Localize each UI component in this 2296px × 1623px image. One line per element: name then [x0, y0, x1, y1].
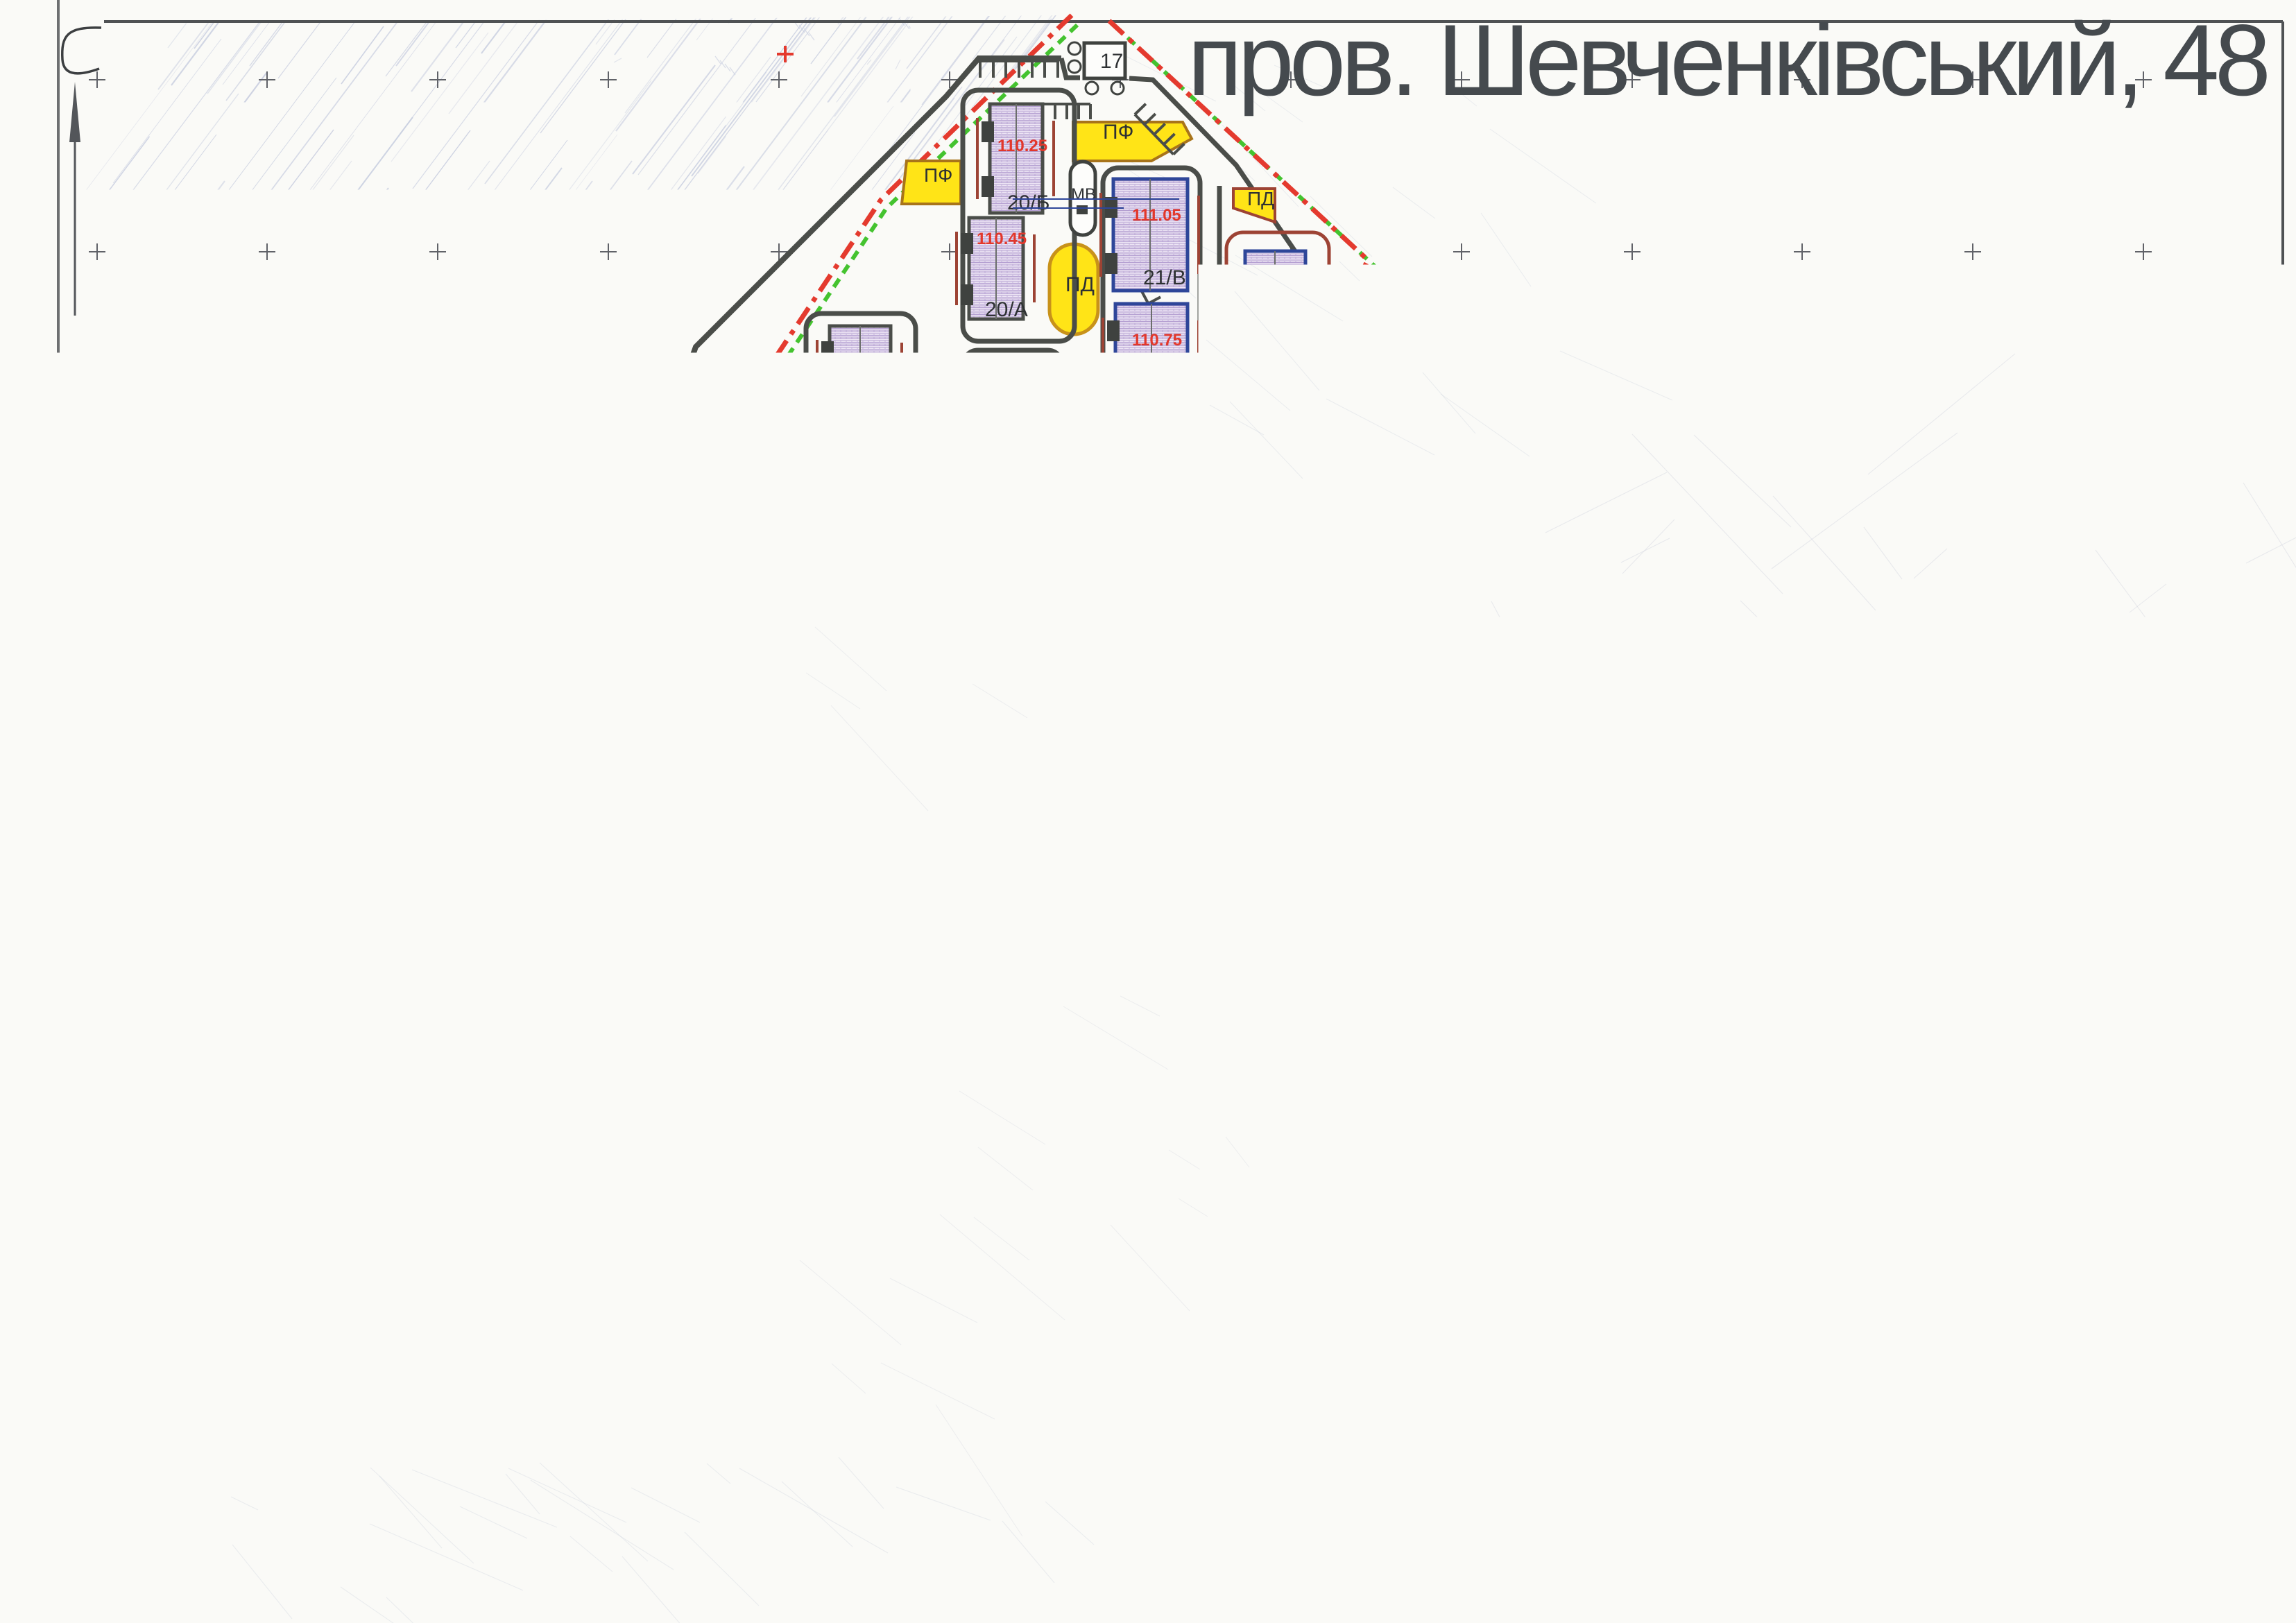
svg-text:110.10: 110.10: [836, 479, 886, 498]
svg-text:18: 18: [599, 1530, 619, 1551]
svg-text:АСП: АСП: [314, 1558, 351, 1579]
svg-text:19/Б: 19/Б: [1002, 438, 1045, 461]
svg-text:110.3: 110.3: [1690, 1368, 1727, 1385]
svg-text:7/А: 7/А: [803, 1445, 834, 1468]
svg-text:ПФ: ПФ: [527, 504, 558, 526]
svg-text:111.00: 111.00: [1156, 1166, 1205, 1185]
svg-text:110.45: 110.45: [977, 230, 1027, 248]
svg-text:ПД: ПД: [1065, 273, 1095, 296]
svg-text:15: 15: [1631, 1386, 1652, 1407]
svg-text:110.45: 110.45: [825, 1185, 875, 1204]
svg-text:110.10: 110.10: [819, 776, 868, 795]
svg-text:4”А”: 4”А”: [368, 1304, 407, 1327]
svg-text:ПФ: ПФ: [637, 993, 662, 1011]
svg-text:ПФ: ПФ: [570, 1289, 597, 1309]
svg-text:6”А”: 6”А”: [633, 1289, 673, 1312]
svg-text:ПФ: ПФ: [1067, 1208, 1093, 1229]
svg-text:110.10: 110.10: [361, 1205, 411, 1223]
svg-text:ПФ: ПФ: [1072, 407, 1101, 429]
svg-text:ПО: ПО: [1400, 1309, 1427, 1330]
svg-text:ПД: ПД: [799, 1070, 825, 1090]
svg-text:ПД: ПД: [935, 732, 962, 753]
svg-text:ПФ: ПФ: [1103, 121, 1133, 144]
svg-text:АСГ: АСГ: [1201, 1463, 1233, 1482]
svg-text:22: 22: [1274, 334, 1296, 357]
svg-text:ПД: ПД: [1332, 1205, 1353, 1223]
svg-text:ПФ: ПФ: [1595, 1391, 1620, 1409]
svg-text:110.25: 110.25: [997, 137, 1047, 155]
svg-text:13: 13: [748, 433, 768, 454]
svg-text:14/А: 14/А: [852, 541, 895, 564]
svg-text:9/А: 9/А: [1133, 1426, 1165, 1449]
svg-text:110.00: 110.00: [531, 884, 581, 903]
svg-text:20/Б: 20/Б: [1007, 191, 1050, 214]
svg-text:110.45: 110.45: [497, 1196, 547, 1215]
svg-text:20/А: 20/А: [985, 298, 1028, 321]
svg-text:110.10: 110.10: [963, 639, 1013, 658]
svg-text:АСГ: АСГ: [219, 1468, 254, 1488]
svg-text:110.45: 110.45: [470, 1380, 520, 1399]
svg-text:АСГ: АСГ: [774, 1562, 809, 1583]
svg-text:6”Б”: 6”Б”: [604, 1450, 643, 1472]
svg-text:5”А”: 5”А”: [474, 1457, 514, 1479]
svg-text:ПФ: ПФ: [559, 1131, 584, 1150]
svg-text:АСП: АСП: [992, 1140, 1027, 1158]
svg-text:17: 17: [1100, 50, 1123, 73]
svg-text:14/Б: 14/Б: [839, 666, 882, 689]
svg-text:АСП: АСП: [1082, 1484, 1117, 1502]
svg-text:ПД: ПД: [1247, 188, 1274, 209]
svg-text:1/А: 1/А: [697, 639, 728, 662]
svg-text:МВ: МВ: [1063, 471, 1088, 490]
svg-text:109.90: 109.90: [555, 1031, 606, 1050]
svg-text:108.75: 108.75: [723, 1486, 791, 1511]
svg-text:2/Б: 2/Б: [706, 1061, 737, 1084]
svg-text:ПО: ПО: [660, 895, 685, 914]
svg-text:3/А: 3/А: [542, 947, 574, 970]
svg-text:ПО: ПО: [712, 1450, 737, 1469]
svg-text:АСП: АСП: [1490, 1407, 1527, 1427]
svg-text:2/А: 2/А: [681, 925, 712, 948]
svg-text:110.40: 110.40: [971, 1166, 1021, 1185]
svg-text:АСГ: АСГ: [472, 1504, 506, 1525]
svg-text:пров. Шевченківський, 48: пров. Шевченківський, 48: [1188, 3, 2274, 117]
svg-text:110.40: 110.40: [799, 1369, 849, 1388]
svg-text:ПФ: ПФ: [173, 1218, 204, 1241]
svg-text:АСП: АСП: [613, 630, 651, 651]
svg-text:ПФ: ПФ: [855, 1085, 880, 1104]
svg-text:4”Б”: 4”Б”: [339, 1465, 377, 1488]
svg-text:111.45: 111.45: [1129, 1350, 1179, 1368]
svg-text:21/Б: 21/Б: [1143, 386, 1185, 409]
svg-text:110.10: 110.10: [688, 1041, 738, 1060]
svg-text:АСП: АСП: [276, 1354, 314, 1375]
svg-text:ПД: ПД: [893, 1276, 919, 1297]
svg-text:110.55: 110.55: [992, 496, 1042, 515]
svg-text:8/А: 8/А: [978, 1265, 1009, 1288]
svg-text:9/Б: 9/Б: [1163, 1265, 1194, 1288]
svg-text:АСП: АСП: [595, 764, 633, 785]
svg-text:АСГ: АСГ: [430, 775, 465, 796]
svg-text:110.85: 110.85: [1257, 282, 1307, 301]
svg-text:16: 16: [875, 391, 898, 414]
svg-text:ПФ: ПФ: [776, 857, 806, 880]
svg-text:110.65: 110.65: [991, 407, 1040, 426]
svg-text:АСП: АСП: [598, 694, 635, 714]
svg-text:АСП: АСП: [1301, 1144, 1336, 1162]
svg-text:1/Б: 1/Б: [687, 739, 718, 762]
svg-text:111.45: 111.45: [1491, 1288, 1541, 1307]
svg-text:110.75: 110.75: [1132, 331, 1182, 350]
svg-text:111.05: 111.05: [1132, 206, 1181, 225]
svg-text:5”Б”: 5”Б”: [504, 1296, 542, 1319]
svg-text:10: 10: [1323, 1330, 1346, 1353]
svg-text:МВ: МВ: [1071, 185, 1096, 204]
svg-text:АСГ: АСГ: [957, 1483, 992, 1504]
svg-text:21/В: 21/В: [1143, 266, 1186, 289]
svg-text:110.10: 110.10: [334, 1389, 384, 1407]
svg-text:ПД: ПД: [1102, 551, 1131, 574]
svg-text:7/Б: 7/Б: [832, 1285, 864, 1307]
svg-text:110.10: 110.10: [827, 634, 877, 653]
svg-text:110.45: 110.45: [600, 1373, 650, 1392]
svg-text:ПФ: ПФ: [111, 1377, 142, 1400]
svg-text:ПФ: ПФ: [402, 1439, 429, 1459]
svg-text:ПФ: ПФ: [906, 630, 931, 649]
svg-text:АСГ: АСГ: [208, 1522, 243, 1543]
svg-text:110.10: 110.10: [683, 567, 733, 585]
svg-text:111.45: 111.45: [1318, 1234, 1367, 1253]
svg-text:110.45: 110.45: [626, 1190, 676, 1208]
svg-text:АСП: АСП: [727, 1149, 762, 1168]
svg-text:19/А: 19/А: [1004, 541, 1047, 564]
svg-text:АСГ: АСГ: [590, 651, 624, 671]
svg-text:21/А: 21/А: [1143, 467, 1186, 490]
svg-text:3/Б: 3/Б: [569, 1061, 600, 1084]
svg-text:110.10: 110.10: [375, 1416, 425, 1434]
svg-text:110.45: 110.45: [1132, 445, 1182, 463]
svg-text:ЛВж: ЛВж: [366, 1051, 402, 1072]
svg-text:ПД: ПД: [416, 1303, 442, 1323]
svg-text:8/Б: 8/Б: [949, 1426, 980, 1449]
svg-text:110.10: 110.10: [413, 1255, 463, 1273]
svg-text:ПД: ПД: [762, 1035, 787, 1056]
svg-text:ПФ: ПФ: [495, 1126, 522, 1147]
svg-text:11: 11: [1515, 1371, 1536, 1393]
svg-text:ПД: ПД: [638, 1086, 660, 1104]
svg-text:АСП: АСП: [875, 1497, 913, 1518]
svg-text:ПО: ПО: [748, 1201, 773, 1219]
svg-text:111.00: 111.00: [945, 1350, 994, 1368]
svg-text:ПФ: ПФ: [924, 164, 952, 186]
svg-text:ПД: ПД: [1261, 1293, 1287, 1314]
svg-text:12: 12: [986, 656, 1009, 679]
svg-text:110.10: 110.10: [671, 712, 721, 731]
svg-text:ПФ: ПФ: [1074, 627, 1100, 648]
